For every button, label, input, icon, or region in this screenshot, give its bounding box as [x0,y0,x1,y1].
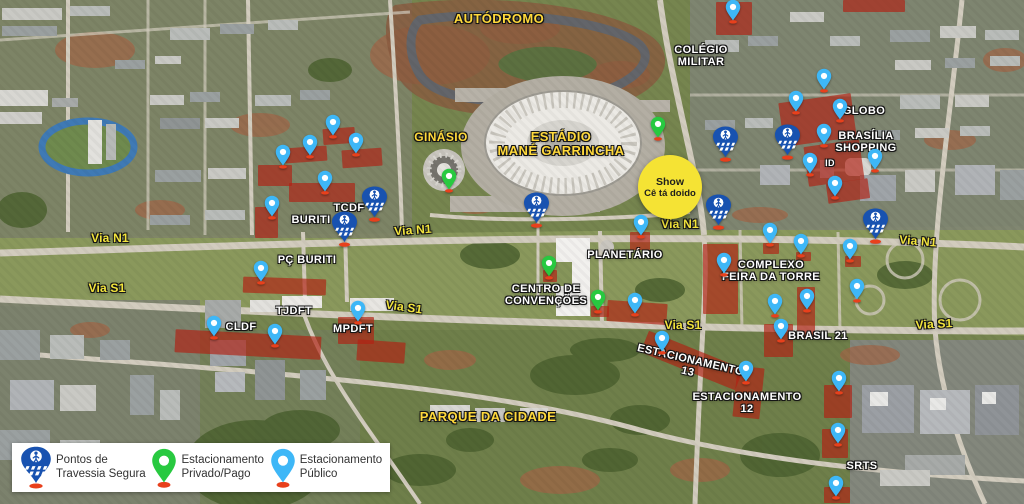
safe-crossing-pin[interactable] [331,211,358,252]
public-parking-pin[interactable] [738,360,754,390]
place-label: CENTRO DE CONVENÇÕES [505,284,587,308]
safe-crossing-pin[interactable] [712,126,739,167]
public-parking-pin[interactable] [788,90,804,120]
public-parking-pin[interactable] [831,370,847,400]
safe-crossing-pin[interactable] [774,124,801,165]
public-parking-pin[interactable] [802,152,818,182]
safe-crossing-pin[interactable] [523,192,550,233]
legend-item-public-parking: Estacionamento Público [270,448,384,488]
legend-item-private-parking: Estacionamento Privado/Pago [151,448,265,488]
public-parking-pin[interactable] [206,315,222,345]
highlight-line1: Show [656,176,684,188]
place-label: COMPLEXO FEIRA DA TORRE [722,260,820,284]
place-label: BRASIL 21 [788,331,848,343]
road-label: Via S1 [664,319,701,332]
safe-crossing-pin[interactable] [862,208,889,249]
public-parking-pin[interactable] [830,422,846,452]
safe-crossing-pin[interactable] [705,194,732,235]
public-parking-pin[interactable] [267,323,283,353]
public-parking-pin[interactable] [725,0,741,29]
public-parking-pin[interactable] [348,132,364,162]
place-label: ESTÁDIO MANÉ GARRINCHA [498,130,625,158]
place-label: PARQUE DA CIDADE [420,410,556,424]
public-parking-pin[interactable] [867,148,883,178]
road-label: Via S1 [915,317,953,332]
public-parking-pin[interactable] [302,134,318,164]
place-label: PLANETÁRIO [587,250,663,262]
place-label: SRTS [847,461,878,473]
road-label: Via N1 [91,232,129,245]
safe-crossing-pin-icon [20,446,52,489]
highlight-line2: Cê tá doido [644,188,696,199]
public-parking-pin[interactable] [253,260,269,290]
public-parking-pin[interactable] [275,144,291,174]
road-label: Via N1 [394,223,432,239]
private-parking-pin-icon [151,448,177,488]
place-label: GLOBO [843,106,885,118]
legend: Pontos de Travessia Segura Estacionament… [12,443,390,492]
place-label: CLDF [226,322,257,334]
public-parking-pin[interactable] [799,288,815,318]
road-label: Via S1 [88,282,125,295]
public-parking-pin[interactable] [793,233,809,263]
place-label: AUTÓDROMO [454,12,544,26]
public-parking-pin[interactable] [350,300,366,330]
private-parking-pin[interactable] [650,116,666,146]
satellite-basemap [0,0,1024,504]
parking-zone [843,0,905,12]
safe-crossing-pin[interactable] [361,186,388,227]
public-parking-pin[interactable] [716,252,732,282]
public-parking-pin-icon [270,448,296,488]
private-parking-pin[interactable] [590,289,606,319]
public-parking-pin[interactable] [827,175,843,205]
place-label: TJDFT [276,306,312,318]
public-parking-pin[interactable] [816,123,832,153]
public-parking-pin[interactable] [325,114,341,144]
legend-item-safe-crossing: Pontos de Travessia Segura [20,446,147,489]
place-label: ESTACIONAMENTO 12 [692,392,801,416]
place-label: ID [825,159,835,169]
road-label: Via N1 [661,218,699,231]
legend-label-private-parking: Estacionamento Privado/Pago [181,454,263,480]
map-canvas: AUTÓDROMOGINÁSIOESTÁDIO MANÉ GARRINCHAPA… [0,0,1024,504]
public-parking-pin[interactable] [828,475,844,504]
private-parking-pin[interactable] [541,255,557,285]
public-parking-pin[interactable] [627,292,643,322]
place-label: PÇ BURITI [278,255,337,267]
public-parking-pin[interactable] [773,318,789,348]
public-parking-pin[interactable] [832,98,848,128]
parking-zone [356,339,405,363]
place-label: GINÁSIO [414,131,467,144]
public-parking-pin[interactable] [816,68,832,98]
highlight-circle: Show Cê tá doido [638,155,702,219]
public-parking-pin[interactable] [317,170,333,200]
public-parking-pin[interactable] [762,222,778,252]
legend-label-safe-crossing: Pontos de Travessia Segura [56,454,146,480]
public-parking-pin[interactable] [633,214,649,244]
public-parking-pin[interactable] [849,278,865,308]
public-parking-pin[interactable] [264,195,280,225]
public-parking-pin[interactable] [842,238,858,268]
place-label: BRASÍLIA SHOPPING [835,131,896,155]
private-parking-pin[interactable] [441,168,457,198]
place-label: COLÉGIO MILITAR [674,45,728,69]
legend-label-public-parking: Estacionamento Público [300,454,382,480]
public-parking-pin[interactable] [654,330,670,360]
place-label: BURITI [291,215,330,227]
